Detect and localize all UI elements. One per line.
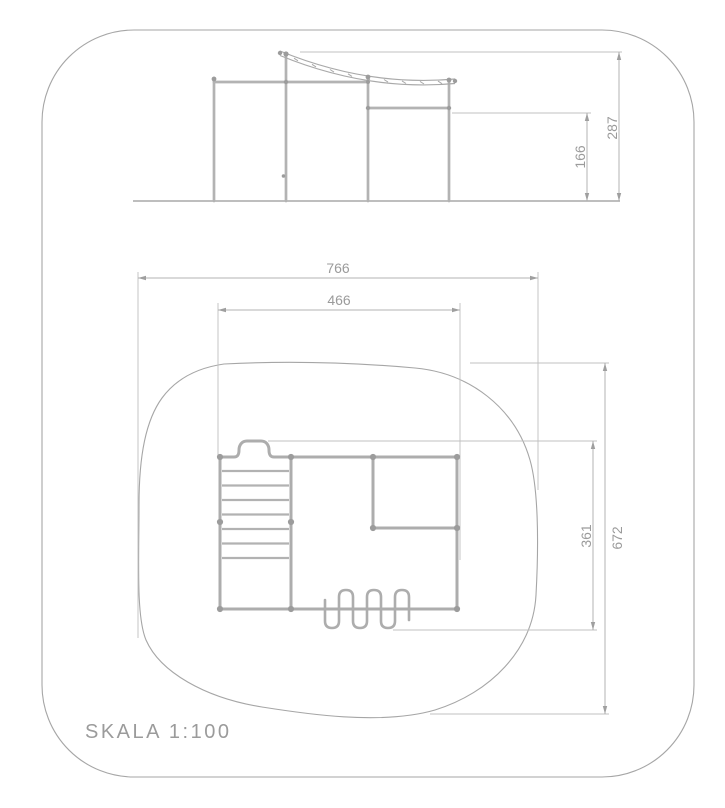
arrowhead-up (603, 363, 607, 371)
dimension-766: 766 (138, 260, 538, 638)
arrowhead-down (585, 193, 589, 201)
dimension-label-frame-width: 466 (327, 292, 351, 308)
dimension-label-zone-depth: 672 (609, 526, 625, 550)
arrowhead-down (591, 622, 595, 630)
dimension-label-zone-width: 766 (326, 260, 350, 276)
ladder-rungs (222, 471, 289, 558)
arrowhead-up (617, 52, 621, 60)
plan-view: 766 466 (138, 260, 625, 718)
equipment-frame-plan (217, 441, 460, 628)
arrowhead-down (617, 193, 621, 201)
scale-label: SKALA 1:100 (85, 721, 231, 743)
arrowhead-down (603, 706, 607, 714)
dimension-361: 361 (268, 441, 597, 630)
dimension-672: 672 (430, 363, 625, 714)
elevation-view: 287 166 (133, 51, 622, 201)
arrowhead-right (452, 308, 460, 312)
arrowhead-right (530, 276, 538, 280)
dimension-label-frame-depth: 361 (578, 524, 594, 548)
arrowhead-up (591, 441, 595, 449)
dimension-466: 466 (218, 292, 460, 560)
dimension-166: 166 (452, 113, 591, 201)
arrowhead-left (218, 308, 226, 312)
elevation-joints (212, 51, 458, 178)
drawing-sheet: 287 166 766 466 (0, 0, 725, 808)
dimension-label-bar-height: 166 (572, 145, 588, 169)
technical-drawing: 287 166 766 466 (0, 0, 725, 808)
top-edge-with-hook (220, 441, 457, 457)
dimension-label-total-height: 287 (604, 116, 620, 140)
arrowhead-left (138, 276, 146, 280)
safety-zone-outline (139, 362, 538, 717)
plan-joints (217, 454, 460, 612)
arrowhead-up (585, 113, 589, 121)
curved-monkey-beam (280, 51, 455, 85)
